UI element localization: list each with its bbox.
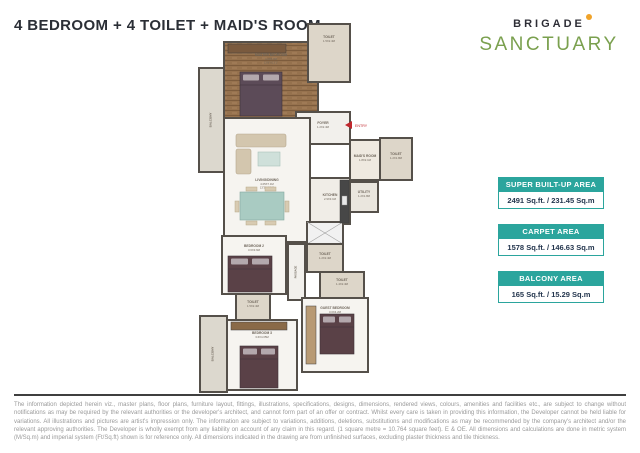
carpet-area-card: CARPET AREA 1578 Sq.ft. / 146.63 Sq.m (498, 224, 604, 256)
room-toilet-3: TOILET1.4X2.4M (320, 272, 364, 298)
room-label-toilet-master: TOILET1.5X2.4M (323, 35, 336, 43)
logo-project: SANCTUARY (474, 34, 624, 56)
room-toilet-2: TOILET1.5X2.4M (236, 294, 270, 320)
room-label-balcony-bottom: BALCONY (211, 347, 215, 362)
balcony-area-value: 165 Sq.ft. / 15.29 Sq.m (498, 285, 604, 303)
room-lobby-hatch (307, 222, 343, 244)
logo-brand: BRIGADE (513, 18, 585, 30)
room-label-toilet-maid: TOILET1.2X1.8M (390, 152, 403, 160)
room-label-utility: UTILITY1.2X1.8M (358, 190, 371, 198)
room-passage: PASSAGE (288, 244, 305, 300)
balcony-area-label: BALCONY AREA (498, 271, 604, 285)
super-built-up-area-card: SUPER BUILT-UP AREA 2491 Sq.ft. / 231.45… (498, 177, 604, 209)
room-label-balcony-master: BALCONY (209, 113, 213, 128)
carpet-area-value: 1578 Sq.ft. / 146.63 Sq.m (498, 238, 604, 256)
room-toilet-master: TOILET1.5X2.4M (308, 24, 350, 82)
bed-furniture (240, 346, 278, 388)
footer-divider (14, 394, 626, 396)
room-label-toilet-common: TOILET1.2X2.4M (319, 252, 332, 260)
room-label-toilet-2: TOILET1.5X2.4M (247, 300, 260, 308)
disclaimer-text: The information depicted herein viz., ma… (14, 401, 626, 442)
carpet-area-label: CARPET AREA (498, 224, 604, 238)
bed-furniture (228, 256, 272, 292)
room-label-toilet-3: TOILET1.4X2.4M (336, 278, 349, 286)
super-built-up-area-label: SUPER BUILT-UP AREA (498, 177, 604, 191)
room-label-passage: PASSAGE (294, 265, 298, 278)
room-toilet-maid: TOILET1.2X1.8M (380, 138, 412, 180)
brigade-sanctuary-logo: BRIGADE SANCTUARY (474, 14, 624, 56)
logo-dot-icon (586, 14, 592, 20)
wardrobe-furniture (228, 44, 286, 53)
wardrobe-furniture (306, 306, 316, 364)
room-balcony-bottom: BALCONY (200, 316, 227, 392)
floor-plan: BALCONYMASTER BEDROOM4.2X4.0M13'9"X13'1"… (190, 8, 440, 396)
bed-furniture (240, 72, 282, 116)
room-label-kitchen: KITCHEN2.9X3.1M (323, 193, 338, 201)
bed-furniture (320, 314, 354, 354)
area-summary: SUPER BUILT-UP AREA 2491 Sq.ft. / 231.45… (498, 177, 604, 318)
balcony-area-card: BALCONY AREA 165 Sq.ft. / 15.29 Sq.m (498, 271, 604, 303)
room-balcony-master: BALCONY (199, 68, 224, 172)
room-toilet-common: TOILET1.2X2.4M (307, 244, 343, 272)
logo-brand-text: BRIGADE (513, 18, 585, 30)
room-label-foyer: FOYER1.2X2.4M (317, 121, 330, 129)
room-utility: UTILITY1.2X1.8M (350, 182, 378, 212)
wardrobe-furniture (231, 322, 287, 330)
table-furniture (235, 187, 289, 225)
super-built-up-area-value: 2491 Sq.ft. / 231.45 Sq.m (498, 191, 604, 209)
counter-furniture (340, 180, 349, 223)
entry-label: ENTRY (355, 124, 368, 128)
room-maids-room: MAID'S ROOM1.8X2.1M (350, 140, 380, 180)
